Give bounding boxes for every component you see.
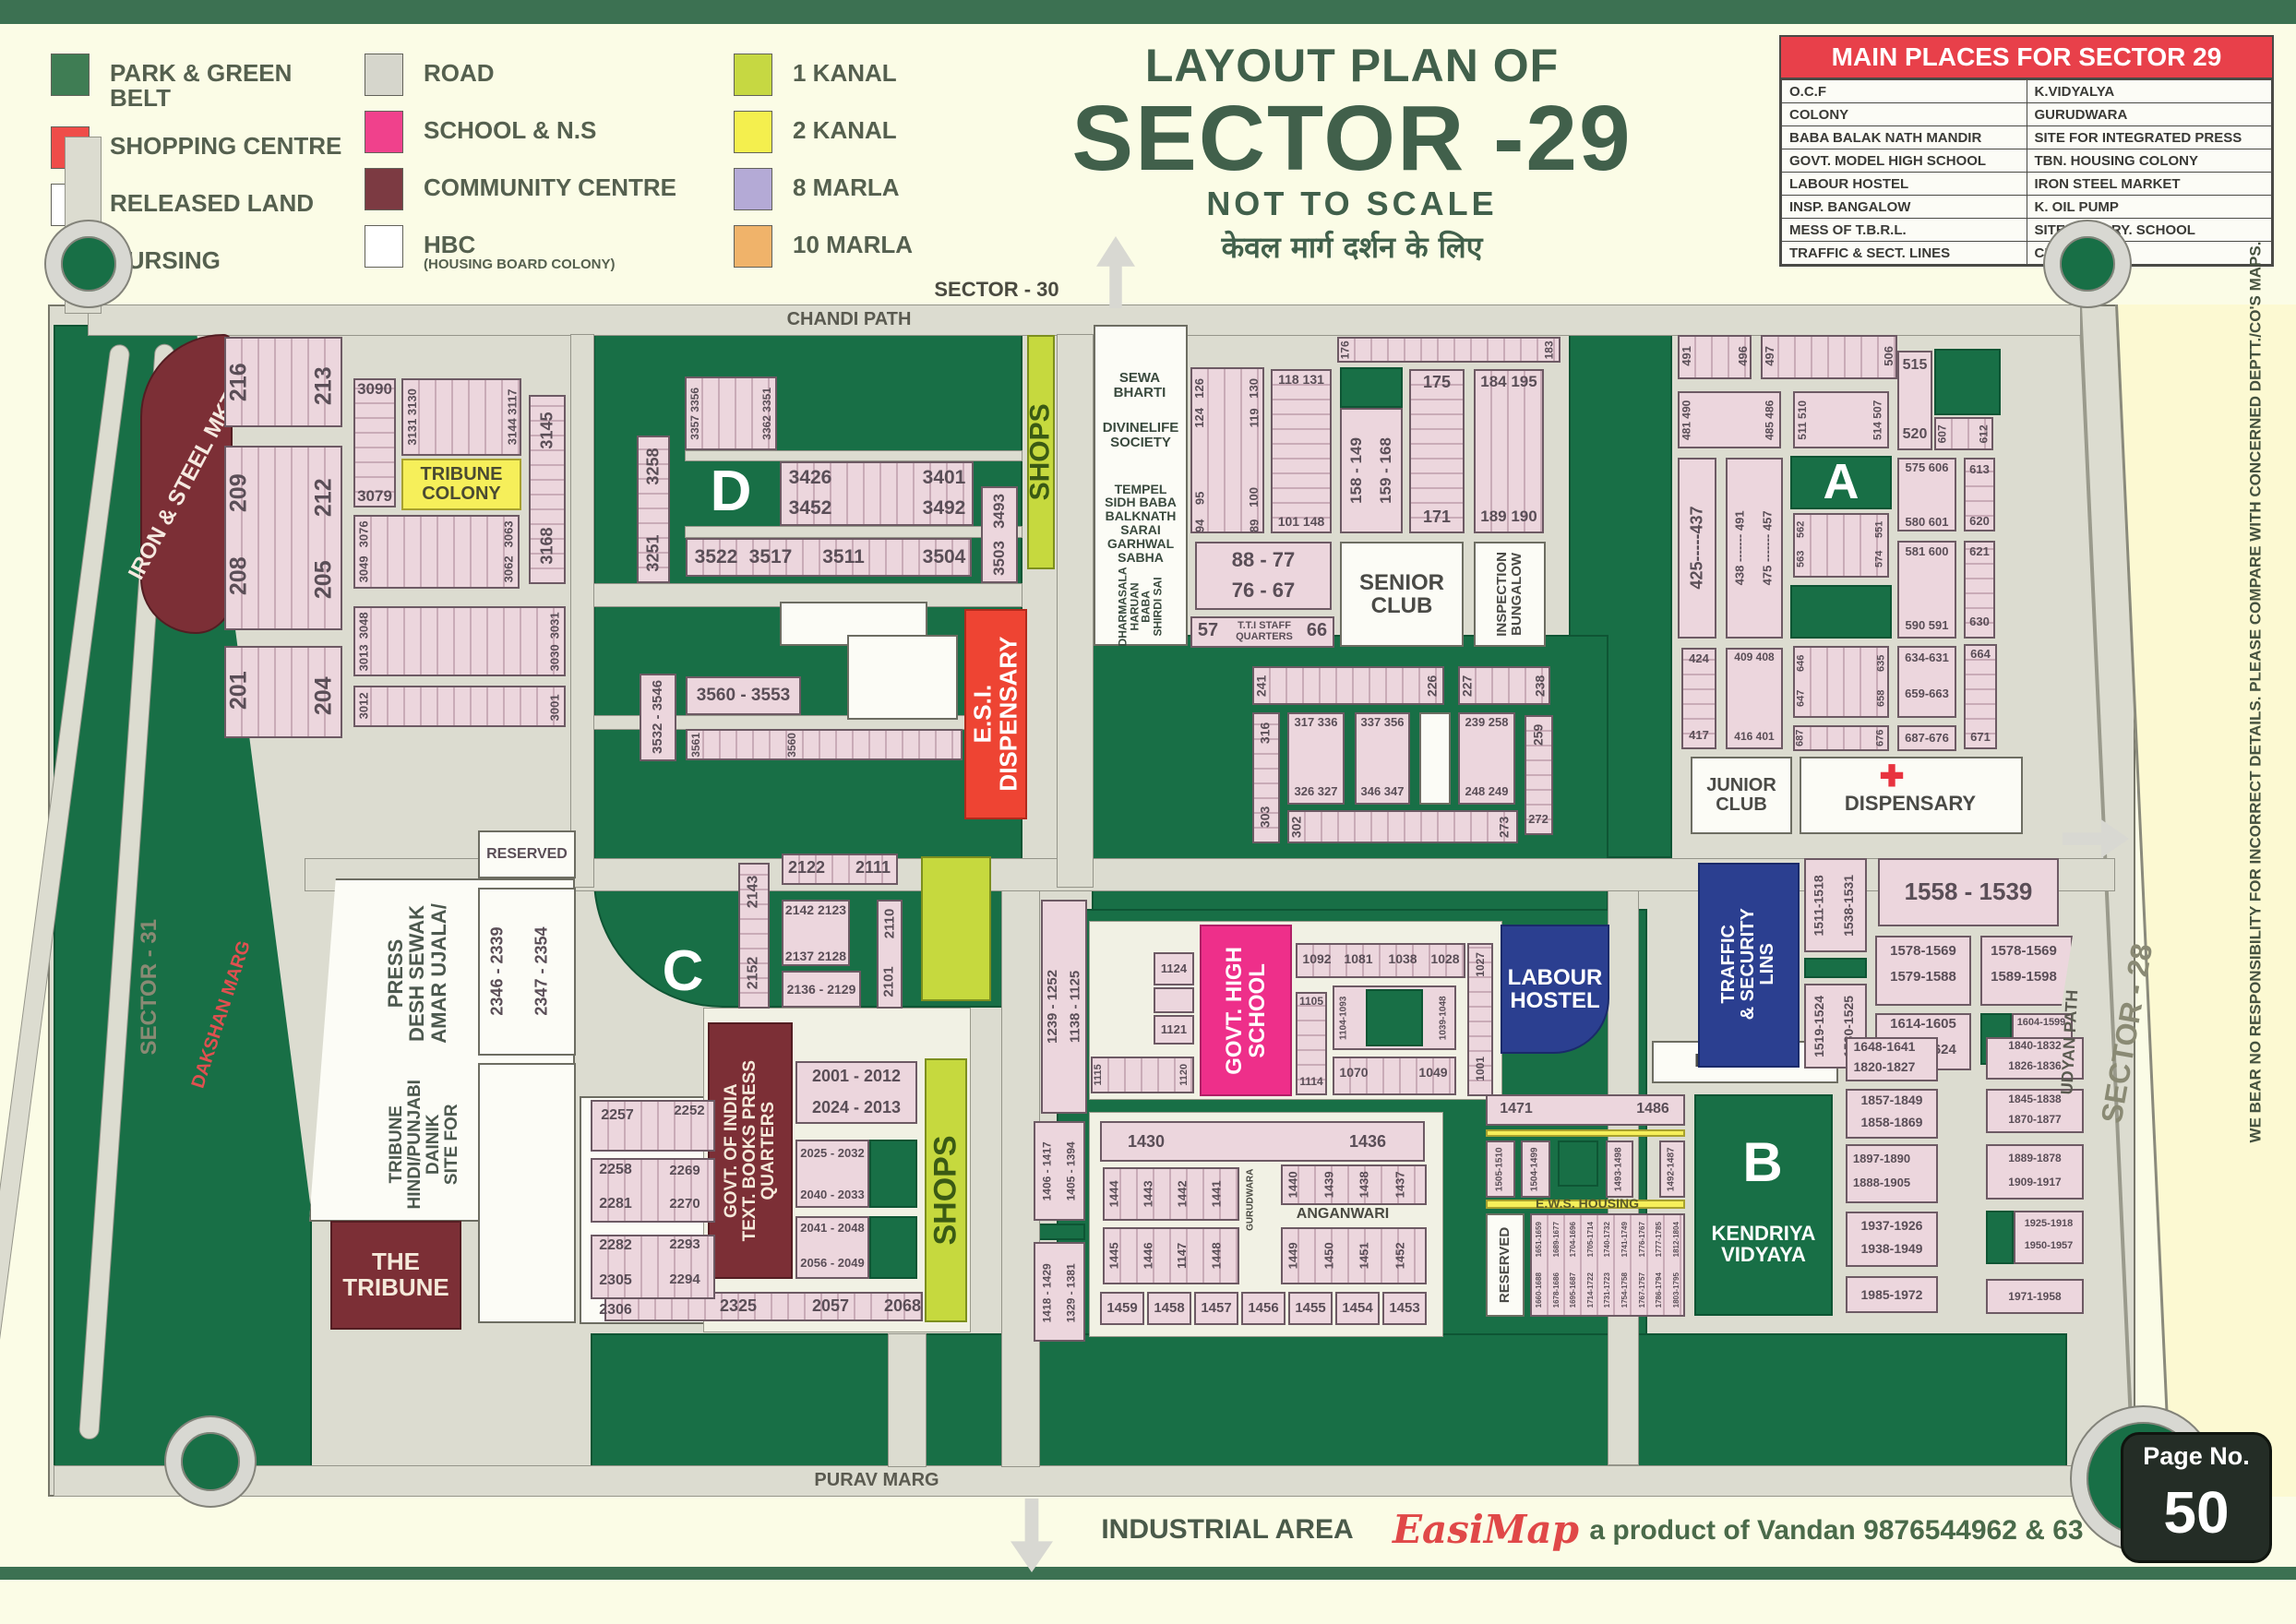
- ews-1803-1795: 1803-1795: [1668, 1265, 1685, 1316]
- chandi-path-label: CHANDI PATH: [747, 308, 951, 332]
- govt-high-school-label: GOVT. HIGHSCHOOL: [1190, 960, 1301, 1061]
- plot-496: 496: [1736, 338, 1750, 375]
- plot-124: 124: [1193, 404, 1206, 432]
- plot-1493-1498: 1493-1498: [1608, 1142, 1632, 1196]
- plot-2142-2123: 2142 2123: [783, 902, 849, 918]
- plot-438-491: 438 ------- 491: [1728, 461, 1752, 635]
- community-swatch: [365, 168, 403, 210]
- plot-346-347: 346 347: [1355, 784, 1410, 799]
- place-cell: INSP. BANGALOW: [1782, 196, 2027, 219]
- shops-bottom-label: SHOPS: [909, 1135, 983, 1246]
- plot-3168: 3168: [531, 517, 564, 576]
- plot-497: 497: [1763, 337, 1776, 376]
- legend-item-hbc: HBC (HOUSING BOARD COLONY): [365, 225, 724, 272]
- plot-2110: 2110: [879, 902, 901, 946]
- hbc-swatch: [365, 225, 403, 268]
- plot-514-507: 514 507: [1871, 393, 1885, 447]
- plot-2040-2033: 2040 - 2033: [796, 1187, 868, 1203]
- road-chandi-path: [88, 304, 2081, 336]
- kanal-strip-c: [921, 856, 991, 1001]
- plot-1430: 1430: [1118, 1131, 1174, 1153]
- industrial-arrow: [1010, 1499, 1053, 1572]
- legend-item-8marla: 8 MARLA: [734, 168, 1038, 210]
- block-3049-3076: [353, 515, 520, 589]
- ews-1767-1757: 1767-1757: [1634, 1265, 1651, 1316]
- plot-3048: 3048: [356, 609, 371, 642]
- a-letter: A: [1813, 458, 1869, 507]
- plot-511-510: 511 510: [1795, 393, 1810, 447]
- plot-1437: 1437: [1393, 1166, 1407, 1203]
- plot-647: 647: [1795, 683, 1808, 714]
- plot-646: 646: [1795, 648, 1808, 679]
- block-1459: 1459: [1100, 1292, 1144, 1325]
- plot-201: 201: [227, 657, 251, 723]
- legend-label: SCHOOL & N.S: [424, 111, 596, 143]
- plot-515: 515: [1900, 355, 1930, 376]
- plot-1938-1949: 1938-1949: [1848, 1241, 1936, 1256]
- plot-208: 208: [227, 543, 251, 609]
- legend-label: 8 MARLA: [793, 168, 900, 200]
- sewa-bharti: SEWABHARTI: [1100, 367, 1179, 404]
- block-3561-row: [686, 729, 963, 760]
- amar-ujala-label: PRESSDESH SEWAKAMAR UJALA/: [343, 900, 491, 1047]
- b-letter: B: [1735, 1129, 1790, 1196]
- plot-575-606: 575 606: [1897, 460, 1956, 474]
- plot-3357-3356: 3357 3356: [688, 378, 702, 448]
- plot-239-258: 239 258: [1458, 715, 1515, 730]
- block-3560-3553: 3560 - 3553: [686, 676, 801, 715]
- ews-1689-1677: 1689-1677: [1549, 1214, 1565, 1265]
- plot-3522: 3522: [688, 544, 744, 570]
- plot-1147: 1147: [1175, 1231, 1190, 1281]
- green-158: [1340, 367, 1403, 408]
- plot-620: 620: [1966, 513, 1993, 529]
- labour-hostel: LABOURHOSTEL: [1501, 925, 1609, 1054]
- plot-581-600: 581 600: [1897, 544, 1956, 558]
- anganwari-label: ANGANWARI: [1283, 1205, 1403, 1224]
- block-1971: 1971-1958: [1986, 1279, 2084, 1314]
- legend-label: PARK & GREEN BELT: [110, 54, 355, 112]
- plot-590-591: 590 591: [1897, 618, 1956, 632]
- block-687-676: 687-676: [1897, 725, 1956, 751]
- roundabout-top-right: [2045, 221, 2130, 306]
- plot-3012: 3012: [356, 687, 371, 724]
- table-row: BABA BALAK NATH MANDIRSITE FOR INTEGRATE…: [1782, 126, 2272, 149]
- plot-1049: 1049: [1414, 1063, 1453, 1081]
- udyan-path-label: UDYAN PATH: [2053, 973, 2087, 1112]
- divinelife-society: DIVINELIFESOCIETY: [1096, 417, 1185, 454]
- plot-209: 209: [227, 460, 251, 526]
- place-cell: COLONY: [1782, 103, 2027, 126]
- plot-562: 562: [1795, 515, 1808, 544]
- plot-409-408: 409 408: [1726, 651, 1783, 663]
- d-letter: D: [694, 463, 768, 520]
- plot-316: 316: [1253, 715, 1277, 750]
- plot-3001: 3001: [547, 689, 562, 726]
- iron-steel-label: IRON & STEEL MKT.: [129, 360, 240, 609]
- ews-1695-1687: 1695-1687: [1565, 1265, 1582, 1316]
- plot-2306: 2306: [594, 1301, 637, 1319]
- plot-130: 130: [1248, 375, 1261, 402]
- plot-2152: 2152: [740, 949, 768, 997]
- plot-2305: 2305: [594, 1272, 637, 1290]
- plot-2281: 2281: [594, 1195, 637, 1213]
- plot-1418-1429: 1418 - 1429: [1036, 1248, 1058, 1338]
- plot-101-148: 101 148: [1271, 513, 1332, 530]
- plot-238: 238: [1533, 668, 1548, 703]
- legend-label: 2 KANAL: [793, 111, 897, 143]
- plot-3013: 3013: [356, 641, 371, 675]
- table-row: TRAFFIC & SECT. LINESCLUB: [1782, 242, 2272, 265]
- legend-label: HBC (HOUSING BOARD COLONY): [424, 225, 616, 272]
- plot-1114: 1114: [1297, 1074, 1325, 1089]
- page-title-line1: LAYOUT PLAN OF: [1061, 39, 1643, 92]
- ews-1678-1686: 1678-1686: [1549, 1265, 1565, 1316]
- plot-259: 259: [1526, 718, 1550, 751]
- roundabout-bottom-left: [166, 1417, 255, 1506]
- plot-3362-3351: 3362 3351: [759, 378, 774, 448]
- plot-676: 676: [1875, 726, 1887, 750]
- plot-1329-1381: 1329 - 1381: [1060, 1248, 1082, 1338]
- junior-club: JUNIORCLUB: [1691, 757, 1792, 834]
- plot-241: 241: [1254, 668, 1269, 703]
- tempel-sidh-baba: TEMPELSIDH BABABALKNATHSARAIGARHWALSABHA: [1098, 469, 1183, 578]
- plot-2122: 2122: [783, 856, 830, 880]
- block-3012-3001: [353, 686, 566, 727]
- plot-1451: 1451: [1357, 1231, 1371, 1281]
- map-stage: PARK & GREEN BELT SHOPPING CENTRE RELEAS…: [0, 0, 2296, 1624]
- plot-1436: 1436: [1340, 1131, 1395, 1153]
- place-cell: K.VIDYALYA: [2027, 80, 2272, 103]
- plot-1442: 1442: [1175, 1170, 1190, 1218]
- green-bottom-band: [591, 1333, 2067, 1467]
- plot-1504-1499: 1504-1499: [1523, 1142, 1549, 1196]
- legend-label: RELEASED LAND: [110, 184, 314, 216]
- plot-3517: 3517: [744, 544, 797, 570]
- block-1124: 1124: [1154, 952, 1194, 985]
- plot-226: 226: [1425, 668, 1440, 703]
- road-purav-marg: [54, 1465, 2144, 1497]
- the-tribune: THETRIBUNE: [330, 1221, 461, 1330]
- plot-204: 204: [312, 663, 336, 729]
- place-cell: IRON STEEL MARKET: [2027, 173, 2272, 196]
- legend-label: SHOPPING CENTRE: [110, 126, 341, 159]
- plot-3079: 3079: [353, 487, 396, 506]
- block-1124b: [1154, 987, 1194, 1013]
- plot-273: 273: [1497, 812, 1512, 842]
- place-cell: SITE FOR INTEGRATED PRESS: [2027, 126, 2272, 149]
- ews-1705-1714: 1705-1714: [1583, 1214, 1599, 1265]
- plot-424: 424: [1683, 651, 1715, 667]
- ews-1741-1749: 1741-1749: [1617, 1214, 1633, 1265]
- park-swatch: [51, 54, 90, 96]
- plot-2282: 2282: [594, 1236, 637, 1255]
- plot-417: 417: [1683, 727, 1715, 744]
- roundabout-top-left: [46, 221, 131, 306]
- industrial-area-label: INDUSTRIAL AREA: [1070, 1513, 1384, 1546]
- plot-1889-1878: 1889-1878: [1988, 1152, 2082, 1165]
- plot-1120: 1120: [1178, 1058, 1191, 1092]
- sector-31-label: SECTOR - 31: [129, 900, 170, 1075]
- ews-1704-1696: 1704-1696: [1565, 1214, 1582, 1265]
- traffic-label: TRAFFIC& SECURITYLINS: [1693, 900, 1804, 1029]
- plot-212: 212: [312, 464, 336, 531]
- block-1985: 1985-1972: [1846, 1276, 1938, 1313]
- place-cell: GOVT. MODEL HIGH SCHOOL: [1782, 149, 2027, 173]
- tti-label: T.T.I STAFFQUARTERS: [1226, 619, 1303, 645]
- plot-2143: 2143: [740, 867, 768, 915]
- ews-1731-1723: 1731-1723: [1599, 1265, 1616, 1316]
- plot-2325: 2325: [712, 1296, 764, 1318]
- plot-2056-2049: 2056 - 2049: [796, 1255, 868, 1272]
- plot-1519-1524: 1519-1524: [1807, 987, 1831, 1065]
- shops-top-label: SHOPS: [1009, 392, 1073, 512]
- plot-3401: 3401: [917, 466, 971, 490]
- block-302-row: [1287, 810, 1518, 843]
- place-cell: BABA BALAK NATH MANDIR: [1782, 126, 2027, 149]
- kanal1-swatch: [734, 54, 772, 96]
- plot-248-249: 248 249: [1458, 784, 1515, 799]
- page-title-line2: SECTOR -29: [1061, 92, 1643, 185]
- plot-612: 612: [1978, 419, 1991, 448]
- ews-1651-1659: 1651-1659: [1531, 1214, 1548, 1265]
- plot-1001: 1001: [1469, 1050, 1491, 1087]
- plot-3492: 3492: [917, 496, 971, 520]
- plot-213: 213: [312, 352, 336, 419]
- plot-2025-2032: 2025 - 2032: [796, 1145, 868, 1162]
- place-cell: O.C.F: [1782, 80, 2027, 103]
- green-515: [1934, 349, 2001, 415]
- plot-1857-1849: 1857-1849: [1848, 1093, 1936, 1107]
- main-places-table: MAIN PLACES FOR SECTOR 29 O.C.FK.VIDYALY…: [1779, 35, 2274, 267]
- plot-1038: 1038: [1384, 950, 1421, 967]
- legend: PARK & GREEN BELT SHOPPING CENTRE RELEAS…: [51, 54, 1061, 298]
- plot-2257: 2257: [596, 1105, 639, 1126]
- legend-label: ROAD: [424, 54, 495, 86]
- plot-1449: 1449: [1286, 1231, 1300, 1281]
- ews-1786-1794: 1786-1794: [1651, 1265, 1668, 1316]
- plot-574: 574: [1873, 544, 1886, 574]
- plot-88-77: 88 - 77: [1200, 548, 1327, 572]
- plot-506: 506: [1882, 338, 1895, 375]
- plot-2137-2128: 2137 2128: [783, 948, 849, 964]
- block-1457: 1457: [1194, 1292, 1238, 1325]
- plot-580-601: 580 601: [1897, 515, 1956, 529]
- road-left-cluster: [570, 334, 594, 888]
- plot-1925-1918: 1925-1918: [2015, 1218, 2082, 1231]
- block-118: [1271, 369, 1332, 533]
- plot-687: 687: [1795, 726, 1807, 750]
- plot-1406-1417: 1406 - 1417: [1036, 1126, 1058, 1216]
- site-tribune-label: TRIBUNEHINDI/PUNJABIDAINIKSITE FOR: [351, 1070, 498, 1218]
- senior-club: SENIORCLUB: [1340, 542, 1464, 647]
- page-title-line4-hindi: केवल मार्ग दर्शन के लिए: [1061, 227, 1643, 267]
- plot-2252: 2252: [666, 1102, 712, 1120]
- plot-2269: 2269: [664, 1163, 705, 1179]
- green-1511-div: [1804, 958, 1867, 978]
- plot-3503: 3503: [983, 537, 1016, 579]
- plot-481-490: 481 490: [1680, 393, 1694, 447]
- kanal2-swatch: [734, 111, 772, 153]
- ews-1714-1722: 1714-1722: [1583, 1265, 1599, 1316]
- plot-1028: 1028: [1427, 950, 1464, 967]
- plot-671: 671: [1966, 729, 1995, 745]
- plot-2270: 2270: [664, 1196, 705, 1212]
- plot-3063: 3063: [501, 517, 516, 552]
- plot-184-195: 184 195: [1474, 373, 1544, 391]
- reserved-ews-label: RESERVED: [1488, 1216, 1523, 1314]
- plot-205: 205: [312, 546, 336, 613]
- plot-3076: 3076: [356, 517, 371, 552]
- plot-1897-1890: 1897-1890: [1848, 1152, 1916, 1166]
- plot-3452: 3452: [783, 496, 838, 520]
- plot-634-631: 634-631: [1898, 651, 1955, 665]
- plot-425-437: 425-----437: [1681, 461, 1713, 635]
- plot-1486: 1486: [1630, 1098, 1676, 1120]
- block-2136: 2136 - 2129: [782, 971, 861, 1008]
- plot-1511-1518: 1511-1518: [1807, 862, 1831, 949]
- c-letter: C: [646, 939, 720, 1004]
- tribune-colony: TRIBUNECOLONY: [401, 459, 521, 510]
- plot-171: 171: [1412, 507, 1462, 528]
- plot-621: 621: [1966, 544, 1993, 559]
- plot-475-457: 475 ------- 457: [1755, 461, 1779, 635]
- plot-2294: 2294: [664, 1272, 705, 1288]
- plot-1081: 1081: [1340, 950, 1377, 967]
- plot-1027: 1027: [1469, 946, 1491, 983]
- plot-227: 227: [1460, 668, 1475, 703]
- plot-1492-1487: 1492-1487: [1660, 1142, 1684, 1196]
- plot-2041-2048: 2041 - 2048: [796, 1220, 868, 1236]
- plot-416-401: 416 401: [1726, 730, 1783, 743]
- legend-item-2kanal: 2 KANAL: [734, 111, 1038, 153]
- page-no-value: 50: [2130, 1473, 2263, 1554]
- green-b-block: [1694, 1094, 1833, 1316]
- plot-76-67: 76 - 67: [1200, 579, 1327, 603]
- table-row: COLONYGURUDWARA: [1782, 103, 2272, 126]
- plot-1820-1827: 1820-1827: [1848, 1059, 1921, 1074]
- plot-520: 520: [1900, 424, 1930, 445]
- table-row: GOVT. MODEL HIGH SCHOOLTBN. HOUSING COLO…: [1782, 149, 2272, 173]
- block-241-row: [1252, 666, 1444, 705]
- plot-183: 183: [1543, 338, 1556, 362]
- place-cell: MESS OF T.B.R.L.: [1782, 219, 2027, 242]
- shirdi-sai-label: DHARMASALAHARUANBABASHIRDI SAI: [1096, 570, 1185, 642]
- plot-630: 630: [1966, 615, 1993, 629]
- legend-item-school: SCHOOL & N.S: [365, 111, 724, 153]
- page-title-line3: NOT TO SCALE: [1061, 185, 1643, 223]
- green-1406-div: [1034, 1224, 1085, 1240]
- plot-3511: 3511: [818, 544, 869, 570]
- purav-marg-label: PURAV MARG: [784, 1469, 969, 1493]
- green-a-lower: [1790, 585, 1892, 639]
- green-1925: [1986, 1211, 2014, 1264]
- plot-1579-1588: 1579-1588: [1878, 969, 1968, 985]
- block-1558: 1558 - 1539: [1878, 858, 2059, 926]
- plot-3251: 3251: [639, 528, 668, 579]
- plot-2111: 2111: [853, 856, 893, 880]
- table-row: INSP. BANGALOWK. OIL PUMP: [1782, 196, 2272, 219]
- ews-1812-1804: 1812-1804: [1668, 1214, 1685, 1265]
- dispensary-label: DISPENSARY: [1809, 790, 2012, 818]
- legend-item-10marla: 10 MARLA: [734, 225, 1038, 268]
- plot-2346-2339: 2346 - 2339: [484, 897, 511, 1046]
- esi-label: E.S.I.DISPENSARY: [931, 636, 1060, 793]
- plot-175: 175: [1412, 373, 1462, 393]
- hbc-sub-label: (HOUSING BOARD COLONY): [424, 257, 616, 272]
- plot-302: 302: [1289, 812, 1304, 842]
- legend-label: 10 MARLA: [793, 225, 913, 257]
- plot-1578-1569a: 1578-1569: [1878, 943, 1968, 960]
- legend-item-community: COMMUNITY CENTRE: [365, 168, 724, 210]
- plot-189-190: 189 190: [1474, 507, 1544, 526]
- plot-176: 176: [1339, 338, 1352, 362]
- plot-1092: 1092: [1297, 950, 1336, 967]
- govt-press-label: GOVT. OF INDIATEXT. BOOKS PRESSQUARTERS: [711, 1038, 790, 1264]
- plot-3049: 3049: [356, 552, 371, 587]
- marla8-swatch: [734, 168, 772, 210]
- disclaimer-label: WE BEAR NO RESPONSIBILITY FOR INCORRECT …: [2237, 166, 2274, 1218]
- road-d2: [685, 526, 1022, 538]
- page-no-label: Page No.: [2130, 1439, 2263, 1473]
- plot-635: 635: [1875, 648, 1888, 679]
- plot-3532-3546: 3532 - 3546: [641, 675, 675, 758]
- road-swatch: [365, 54, 403, 96]
- plot-613: 613: [1966, 461, 1993, 477]
- table-row: O.C.FK.VIDYALYA: [1782, 80, 2272, 103]
- plot-2293: 2293: [664, 1236, 705, 1253]
- plot-2068: 2068: [879, 1296, 927, 1318]
- plot-337-356: 337 356: [1355, 715, 1410, 730]
- table-row: LABOUR HOSTELIRON STEEL MARKET: [1782, 173, 2272, 196]
- block-176-row: [1337, 337, 1561, 363]
- plot-126: 126: [1193, 375, 1206, 402]
- plot-326-327: 326 327: [1287, 784, 1345, 799]
- place-cell: TRAFFIC & SECT. LINES: [1782, 242, 2027, 265]
- plot-118-131: 118 131: [1271, 371, 1332, 388]
- plot-3144-3117: 3144 3117: [504, 381, 520, 453]
- legend-col-3: 1 KANAL 2 KANAL 8 MARLA 10 MARLA: [734, 54, 1038, 298]
- ews-1777-1785: 1777-1785: [1651, 1214, 1668, 1265]
- plot-1438: 1438: [1357, 1166, 1371, 1203]
- dakshan-marg-label: DAKSHAN MARG: [194, 932, 249, 1098]
- plot-1452: 1452: [1393, 1231, 1407, 1281]
- kendriya-vidyaya: KENDRIYAVIDYAYA: [1700, 1216, 1827, 1272]
- ews-1754-1758: 1754-1758: [1617, 1265, 1633, 1316]
- ews-1776-1767: 1776-1767: [1634, 1214, 1651, 1265]
- block-1458: 1458: [1147, 1292, 1191, 1325]
- place-cell: LABOUR HOSTEL: [1782, 173, 2027, 196]
- plot-1104-1093: 1104-1093: [1334, 987, 1355, 1048]
- plot-1538-1531: 1538-1531: [1836, 862, 1860, 949]
- plot-100: 100: [1248, 484, 1261, 511]
- legend-label: COMMUNITY CENTRE: [424, 168, 676, 200]
- plot-1441: 1441: [1209, 1170, 1224, 1218]
- plot-1505-1510: 1505-1510: [1488, 1142, 1513, 1196]
- plot-551: 551: [1873, 515, 1886, 544]
- plot-1614-1605: 1614-1605: [1878, 1017, 1968, 1032]
- plot-2001-2012: 2001 - 2012: [798, 1067, 915, 1087]
- plot-1405-1394: 1405 - 1394: [1060, 1126, 1082, 1216]
- main-places-title: MAIN PLACES FOR SECTOR 29: [1781, 37, 2272, 79]
- school-swatch: [365, 111, 403, 153]
- plot-1039-1048: 1039-1048: [1434, 987, 1454, 1048]
- plot-1858-1869: 1858-1869: [1848, 1115, 1936, 1129]
- plot-2024-2013: 2024 - 2013: [798, 1098, 915, 1118]
- plot-658: 658: [1875, 683, 1888, 714]
- plot-1446: 1446: [1141, 1231, 1155, 1281]
- reserved-left: RESERVED: [478, 830, 576, 878]
